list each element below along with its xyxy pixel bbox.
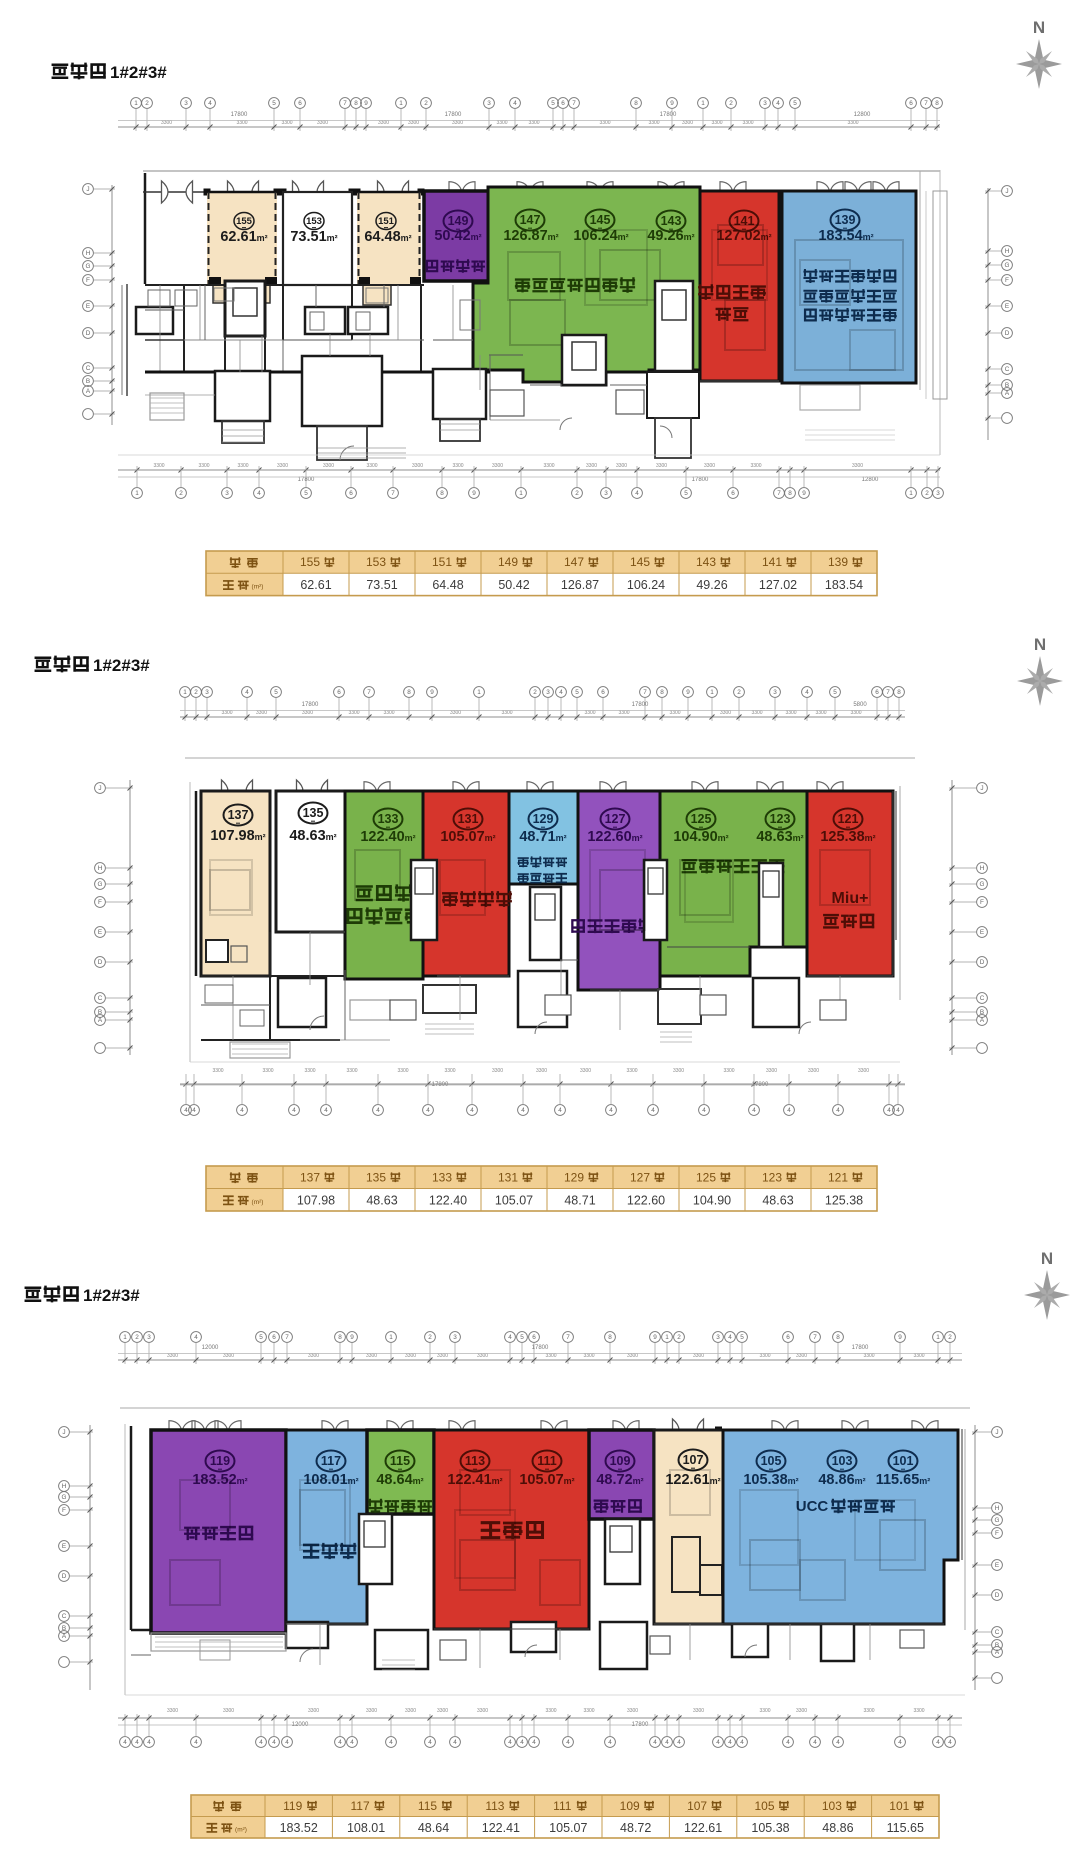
svg-text:3300: 3300 <box>378 120 389 126</box>
svg-text:4: 4 <box>716 1739 720 1746</box>
svg-text:135: 135 <box>366 1170 386 1184</box>
svg-text:3: 3 <box>763 100 767 107</box>
svg-text:107.98: 107.98 <box>297 1193 335 1207</box>
svg-text:4: 4 <box>194 1739 198 1746</box>
svg-text:4: 4 <box>896 1107 900 1114</box>
svg-text:E: E <box>1005 303 1009 310</box>
svg-text:3300: 3300 <box>477 1353 488 1359</box>
svg-text:F: F <box>995 1530 999 1537</box>
svg-text:2: 2 <box>729 100 733 107</box>
svg-text:3300: 3300 <box>198 463 209 469</box>
svg-text:127.02: 127.02 <box>759 578 797 592</box>
svg-text:4: 4 <box>508 1739 512 1746</box>
svg-text:183.52: 183.52 <box>280 1821 318 1835</box>
svg-text:4: 4 <box>192 1107 196 1114</box>
svg-text:3300: 3300 <box>492 463 503 469</box>
svg-text:12800: 12800 <box>862 477 879 483</box>
svg-text:4: 4 <box>532 1739 536 1746</box>
svg-text:4: 4 <box>740 1739 744 1746</box>
svg-text:3: 3 <box>205 689 209 696</box>
svg-text:4: 4 <box>508 1334 512 1341</box>
svg-text:2: 2 <box>925 490 929 497</box>
svg-text:12000: 12000 <box>202 1345 219 1351</box>
svg-text:2: 2 <box>145 100 149 107</box>
svg-text:F: F <box>1005 277 1009 284</box>
svg-text:3300: 3300 <box>693 1353 704 1359</box>
svg-text:4: 4 <box>787 1107 791 1114</box>
svg-text:131: 131 <box>458 812 479 826</box>
svg-text:3300: 3300 <box>317 120 328 126</box>
svg-text:147: 147 <box>520 213 541 227</box>
svg-text:117: 117 <box>321 1454 341 1468</box>
svg-text:106.24: 106.24 <box>627 578 665 592</box>
svg-text:3300: 3300 <box>346 1068 357 1074</box>
svg-text:4: 4 <box>426 1107 430 1114</box>
svg-text:111: 111 <box>553 1799 572 1813</box>
svg-text:3300: 3300 <box>437 1353 448 1359</box>
svg-text:E: E <box>62 1543 66 1550</box>
svg-text:J: J <box>995 1429 998 1436</box>
svg-text:3: 3 <box>225 490 229 497</box>
svg-text:4: 4 <box>389 1739 393 1746</box>
svg-text:3300: 3300 <box>262 1068 273 1074</box>
svg-text:3300: 3300 <box>437 1708 448 1714</box>
svg-text:123: 123 <box>762 1170 782 1184</box>
svg-text:1: 1 <box>389 1334 393 1341</box>
svg-text:4: 4 <box>453 1739 457 1746</box>
svg-text:8: 8 <box>836 1334 840 1341</box>
svg-text:4: 4 <box>194 1334 198 1341</box>
svg-text:7: 7 <box>391 490 395 497</box>
svg-text:48.72: 48.72 <box>620 1821 651 1835</box>
svg-text:133: 133 <box>432 1170 452 1184</box>
svg-text:151: 151 <box>378 216 395 227</box>
svg-text:2: 2 <box>737 689 741 696</box>
svg-text:3300: 3300 <box>796 1353 807 1359</box>
svg-text:105: 105 <box>761 1454 782 1468</box>
svg-text:4: 4 <box>948 1739 952 1746</box>
svg-text:121: 121 <box>828 1170 848 1184</box>
svg-text:7: 7 <box>777 490 781 497</box>
svg-text:J: J <box>62 1429 65 1436</box>
svg-text:1: 1 <box>134 100 138 107</box>
svg-text:62.61: 62.61 <box>300 578 331 592</box>
svg-text:3300: 3300 <box>405 1353 416 1359</box>
svg-text:5: 5 <box>575 689 579 696</box>
svg-text:123: 123 <box>770 812 791 826</box>
svg-text:3: 3 <box>453 1334 457 1341</box>
svg-text:3: 3 <box>184 100 188 107</box>
svg-text:4: 4 <box>324 1107 328 1114</box>
svg-text:105.38: 105.38 <box>751 1821 789 1835</box>
svg-text:115: 115 <box>390 1454 410 1468</box>
svg-text:A: A <box>995 1649 1000 1656</box>
svg-text:3300: 3300 <box>616 463 627 469</box>
svg-text:108.01: 108.01 <box>347 1821 385 1835</box>
svg-text:(m²): (m²) <box>252 1199 264 1206</box>
svg-text:64.48: 64.48 <box>432 578 463 592</box>
svg-text:141: 141 <box>734 214 755 228</box>
svg-text:105.07: 105.07 <box>549 1821 587 1835</box>
svg-text:4: 4 <box>813 1739 817 1746</box>
svg-text:8: 8 <box>660 689 664 696</box>
svg-text:4: 4 <box>338 1739 342 1746</box>
svg-text:107: 107 <box>687 1799 707 1813</box>
svg-text:7: 7 <box>367 689 371 696</box>
svg-text:2: 2 <box>533 689 537 696</box>
svg-text:3300: 3300 <box>308 1708 319 1714</box>
svg-text:5800: 5800 <box>853 702 867 708</box>
svg-text:4: 4 <box>752 1107 756 1114</box>
svg-text:4: 4 <box>677 1739 681 1746</box>
svg-text:3300: 3300 <box>366 463 377 469</box>
svg-text:9: 9 <box>364 100 368 107</box>
svg-text:3300: 3300 <box>847 120 858 126</box>
svg-text:3: 3 <box>773 689 777 696</box>
svg-text:4: 4 <box>898 1739 902 1746</box>
svg-text:3300: 3300 <box>720 710 731 716</box>
svg-text:(m²): (m²) <box>235 1826 247 1833</box>
svg-text:3300: 3300 <box>536 1068 547 1074</box>
svg-text:H: H <box>980 865 985 872</box>
svg-text:3: 3 <box>716 1334 720 1341</box>
svg-text:104.90: 104.90 <box>693 1193 731 1207</box>
svg-text:3300: 3300 <box>302 710 313 716</box>
svg-text:C: C <box>995 1629 1000 1636</box>
svg-text:3300: 3300 <box>850 710 861 716</box>
svg-text:139: 139 <box>835 213 856 227</box>
svg-text:J: J <box>980 785 983 792</box>
svg-text:105: 105 <box>754 1799 774 1813</box>
svg-text:3300: 3300 <box>153 463 164 469</box>
svg-text:H: H <box>86 250 91 257</box>
svg-text:H: H <box>1005 248 1010 255</box>
svg-text:125: 125 <box>696 1170 716 1184</box>
svg-text:4: 4 <box>520 1739 524 1746</box>
svg-text:3300: 3300 <box>221 710 232 716</box>
svg-text:3300: 3300 <box>704 463 715 469</box>
svg-text:122.60: 122.60 <box>627 1193 665 1207</box>
svg-text:9: 9 <box>430 689 434 696</box>
svg-text:17800: 17800 <box>302 702 319 708</box>
svg-text:H: H <box>98 865 103 872</box>
svg-text:117: 117 <box>351 1799 370 1813</box>
svg-text:7: 7 <box>285 1334 289 1341</box>
svg-text:4: 4 <box>245 689 249 696</box>
svg-text:137: 137 <box>228 808 249 822</box>
svg-text:H: H <box>62 1483 67 1490</box>
svg-text:4: 4 <box>208 100 212 107</box>
svg-text:1#2#3#: 1#2#3# <box>110 63 167 82</box>
svg-text:3300: 3300 <box>656 463 667 469</box>
svg-text:8: 8 <box>338 1334 342 1341</box>
svg-text:3300: 3300 <box>545 1708 556 1714</box>
svg-text:48.71: 48.71 <box>564 1193 595 1207</box>
svg-text:3300: 3300 <box>223 1353 234 1359</box>
svg-text:103: 103 <box>822 1799 842 1813</box>
svg-text:17800: 17800 <box>231 112 248 118</box>
svg-text:3300: 3300 <box>852 463 863 469</box>
svg-text:3300: 3300 <box>161 120 172 126</box>
svg-text:N: N <box>1034 635 1046 654</box>
svg-text:7: 7 <box>572 100 576 107</box>
svg-text:D: D <box>62 1573 67 1580</box>
svg-text:A: A <box>98 1017 103 1024</box>
svg-text:17800: 17800 <box>298 477 315 483</box>
svg-text:4: 4 <box>836 1739 840 1746</box>
svg-text:2: 2 <box>194 689 198 696</box>
svg-text:121: 121 <box>838 812 859 826</box>
svg-text:17800: 17800 <box>852 1345 869 1351</box>
svg-text:5: 5 <box>259 1334 263 1341</box>
svg-text:F: F <box>98 899 102 906</box>
svg-text:4: 4 <box>350 1739 354 1746</box>
svg-text:6: 6 <box>272 1334 276 1341</box>
svg-text:1: 1 <box>701 100 705 107</box>
svg-text:3300: 3300 <box>444 1068 455 1074</box>
svg-text:17800: 17800 <box>692 477 709 483</box>
svg-text:4: 4 <box>776 100 780 107</box>
svg-text:101: 101 <box>889 1799 909 1813</box>
svg-text:6: 6 <box>875 689 879 696</box>
svg-text:4: 4 <box>135 1739 139 1746</box>
svg-text:4: 4 <box>608 1739 612 1746</box>
svg-text:122.61: 122.61 <box>684 1821 722 1835</box>
svg-text:147: 147 <box>564 555 584 569</box>
svg-text:143: 143 <box>696 555 716 569</box>
svg-text:2: 2 <box>948 1334 952 1341</box>
svg-text:135: 135 <box>303 806 324 820</box>
svg-text:3300: 3300 <box>669 710 680 716</box>
svg-text:3300: 3300 <box>858 1068 869 1074</box>
svg-text:1: 1 <box>909 490 913 497</box>
svg-text:2: 2 <box>424 100 428 107</box>
svg-text:3300: 3300 <box>796 1708 807 1714</box>
svg-text:8: 8 <box>788 490 792 497</box>
svg-text:3300: 3300 <box>584 710 595 716</box>
svg-text:N: N <box>1033 18 1045 37</box>
svg-text:3300: 3300 <box>167 1353 178 1359</box>
svg-text:1: 1 <box>477 689 481 696</box>
svg-text:C: C <box>1005 366 1010 373</box>
svg-text:4: 4 <box>521 1107 525 1114</box>
svg-text:2: 2 <box>575 490 579 497</box>
svg-text:48.63: 48.63 <box>366 1193 397 1207</box>
svg-text:3300: 3300 <box>256 710 267 716</box>
svg-text:3300: 3300 <box>808 1068 819 1074</box>
svg-text:H: H <box>995 1505 1000 1512</box>
svg-text:B: B <box>86 378 90 385</box>
svg-text:3300: 3300 <box>408 120 419 126</box>
svg-text:8: 8 <box>354 100 358 107</box>
svg-text:F: F <box>62 1507 66 1514</box>
svg-text:4: 4 <box>558 1107 562 1114</box>
svg-text:6: 6 <box>731 490 735 497</box>
svg-text:131: 131 <box>498 1170 518 1184</box>
svg-text:3300: 3300 <box>785 710 796 716</box>
svg-text:3300: 3300 <box>723 1068 734 1074</box>
svg-text:137: 137 <box>300 1170 320 1184</box>
svg-text:F: F <box>86 277 90 284</box>
svg-text:J: J <box>1005 188 1008 195</box>
svg-text:6: 6 <box>532 1334 536 1341</box>
svg-text:5: 5 <box>274 689 278 696</box>
svg-text:3300: 3300 <box>405 1708 416 1714</box>
svg-text:3300: 3300 <box>599 120 610 126</box>
svg-text:5: 5 <box>520 1334 524 1341</box>
svg-text:145: 145 <box>590 213 611 227</box>
svg-text:3300: 3300 <box>711 120 722 126</box>
svg-text:3300: 3300 <box>452 120 463 126</box>
svg-text:3300: 3300 <box>528 120 539 126</box>
svg-text:3300: 3300 <box>618 710 629 716</box>
svg-text:3300: 3300 <box>543 463 554 469</box>
svg-text:4: 4 <box>887 1107 891 1114</box>
svg-text:3300: 3300 <box>477 1708 488 1714</box>
svg-text:A: A <box>62 1633 67 1640</box>
svg-text:1#2#3#: 1#2#3# <box>83 1286 140 1305</box>
svg-text:5: 5 <box>272 100 276 107</box>
svg-text:3: 3 <box>147 1334 151 1341</box>
svg-text:9: 9 <box>350 1334 354 1341</box>
svg-text:4: 4 <box>470 1107 474 1114</box>
svg-text:3300: 3300 <box>913 1708 924 1714</box>
svg-text:1: 1 <box>123 1334 127 1341</box>
svg-text:3300: 3300 <box>863 1708 874 1714</box>
svg-text:125: 125 <box>691 812 712 826</box>
svg-text:3300: 3300 <box>452 463 463 469</box>
svg-text:1#2#3#: 1#2#3# <box>93 656 150 675</box>
svg-text:D: D <box>98 959 103 966</box>
svg-text:183.54: 183.54 <box>825 578 863 592</box>
svg-text:3300: 3300 <box>277 463 288 469</box>
svg-text:G: G <box>980 881 985 888</box>
svg-text:D: D <box>980 959 985 966</box>
svg-text:3: 3 <box>936 490 940 497</box>
svg-text:6: 6 <box>349 490 353 497</box>
svg-text:A: A <box>86 388 91 395</box>
svg-text:8: 8 <box>440 490 444 497</box>
svg-text:G: G <box>98 881 103 888</box>
svg-text:4: 4 <box>259 1739 263 1746</box>
svg-text:3300: 3300 <box>323 463 334 469</box>
svg-text:3300: 3300 <box>580 1068 591 1074</box>
svg-text:3300: 3300 <box>223 1708 234 1714</box>
svg-text:4: 4 <box>728 1334 732 1341</box>
svg-text:6: 6 <box>909 100 913 107</box>
svg-text:1: 1 <box>135 490 139 497</box>
svg-text:3300: 3300 <box>648 120 659 126</box>
svg-text:C: C <box>98 995 103 1002</box>
svg-text:3300: 3300 <box>626 1068 637 1074</box>
svg-text:141: 141 <box>762 555 782 569</box>
svg-text:101: 101 <box>893 1454 914 1468</box>
svg-text:49.26: 49.26 <box>696 578 727 592</box>
svg-text:D: D <box>995 1592 1000 1599</box>
svg-text:4: 4 <box>559 689 563 696</box>
svg-text:3300: 3300 <box>492 1068 503 1074</box>
svg-text:3300: 3300 <box>742 120 753 126</box>
svg-text:3300: 3300 <box>366 1708 377 1714</box>
svg-text:3300: 3300 <box>348 710 359 716</box>
svg-text:4: 4 <box>635 490 639 497</box>
svg-text:113: 113 <box>465 1454 485 1468</box>
svg-text:C: C <box>62 1613 67 1620</box>
svg-text:48.64: 48.64 <box>418 1821 449 1835</box>
svg-text:48.86: 48.86 <box>822 1821 853 1835</box>
svg-text:1: 1 <box>710 689 714 696</box>
svg-text:3300: 3300 <box>751 710 762 716</box>
svg-text:48.63: 48.63 <box>762 1193 793 1207</box>
svg-text:6: 6 <box>298 100 302 107</box>
svg-text:3300: 3300 <box>759 1708 770 1714</box>
svg-text:2: 2 <box>135 1334 139 1341</box>
svg-text:3300: 3300 <box>627 1708 638 1714</box>
svg-text:115: 115 <box>418 1799 437 1813</box>
svg-text:4: 4 <box>428 1739 432 1746</box>
svg-text:D: D <box>1005 330 1010 337</box>
svg-text:3300: 3300 <box>586 463 597 469</box>
svg-text:122.40: 122.40 <box>429 1193 467 1207</box>
svg-text:129: 129 <box>533 812 554 826</box>
svg-text:139: 139 <box>828 555 848 569</box>
svg-text:3300: 3300 <box>397 1068 408 1074</box>
svg-text:7: 7 <box>924 100 928 107</box>
svg-text:1: 1 <box>665 1334 669 1341</box>
svg-text:3300: 3300 <box>693 1708 704 1714</box>
svg-text:7: 7 <box>813 1334 817 1341</box>
svg-text:E: E <box>98 929 102 936</box>
svg-text:3300: 3300 <box>673 1068 684 1074</box>
svg-text:3300: 3300 <box>167 1708 178 1714</box>
svg-text:3300: 3300 <box>863 1353 874 1359</box>
svg-text:9: 9 <box>686 689 690 696</box>
svg-text:9: 9 <box>670 100 674 107</box>
svg-text:4: 4 <box>240 1107 244 1114</box>
svg-text:G: G <box>62 1494 67 1501</box>
svg-text:9: 9 <box>898 1334 902 1341</box>
svg-text:122.41: 122.41 <box>482 1821 520 1835</box>
svg-text:3300: 3300 <box>304 1068 315 1074</box>
svg-text:3300: 3300 <box>366 1353 377 1359</box>
svg-text:3: 3 <box>604 490 608 497</box>
svg-text:119: 119 <box>283 1799 302 1813</box>
svg-text:7: 7 <box>643 689 647 696</box>
svg-text:9: 9 <box>653 1334 657 1341</box>
svg-text:155: 155 <box>300 555 320 569</box>
svg-text:E: E <box>86 303 90 310</box>
svg-text:G: G <box>86 263 91 270</box>
svg-text:1: 1 <box>936 1334 940 1341</box>
svg-text:1: 1 <box>519 490 523 497</box>
svg-text:9: 9 <box>802 490 806 497</box>
svg-text:4: 4 <box>285 1739 289 1746</box>
svg-text:4: 4 <box>651 1107 655 1114</box>
svg-text:3300: 3300 <box>750 463 761 469</box>
svg-text:3300: 3300 <box>913 1353 924 1359</box>
svg-text:107: 107 <box>683 1453 704 1467</box>
svg-text:126.87: 126.87 <box>561 578 599 592</box>
svg-text:50.42: 50.42 <box>498 578 529 592</box>
svg-text:J: J <box>98 785 101 792</box>
svg-text:5: 5 <box>793 100 797 107</box>
svg-text:113: 113 <box>485 1799 504 1813</box>
svg-text:1: 1 <box>183 689 187 696</box>
svg-text:119: 119 <box>210 1454 230 1468</box>
svg-text:12800: 12800 <box>854 112 871 118</box>
svg-text:N: N <box>1041 1249 1053 1268</box>
svg-text:C: C <box>980 995 985 1002</box>
